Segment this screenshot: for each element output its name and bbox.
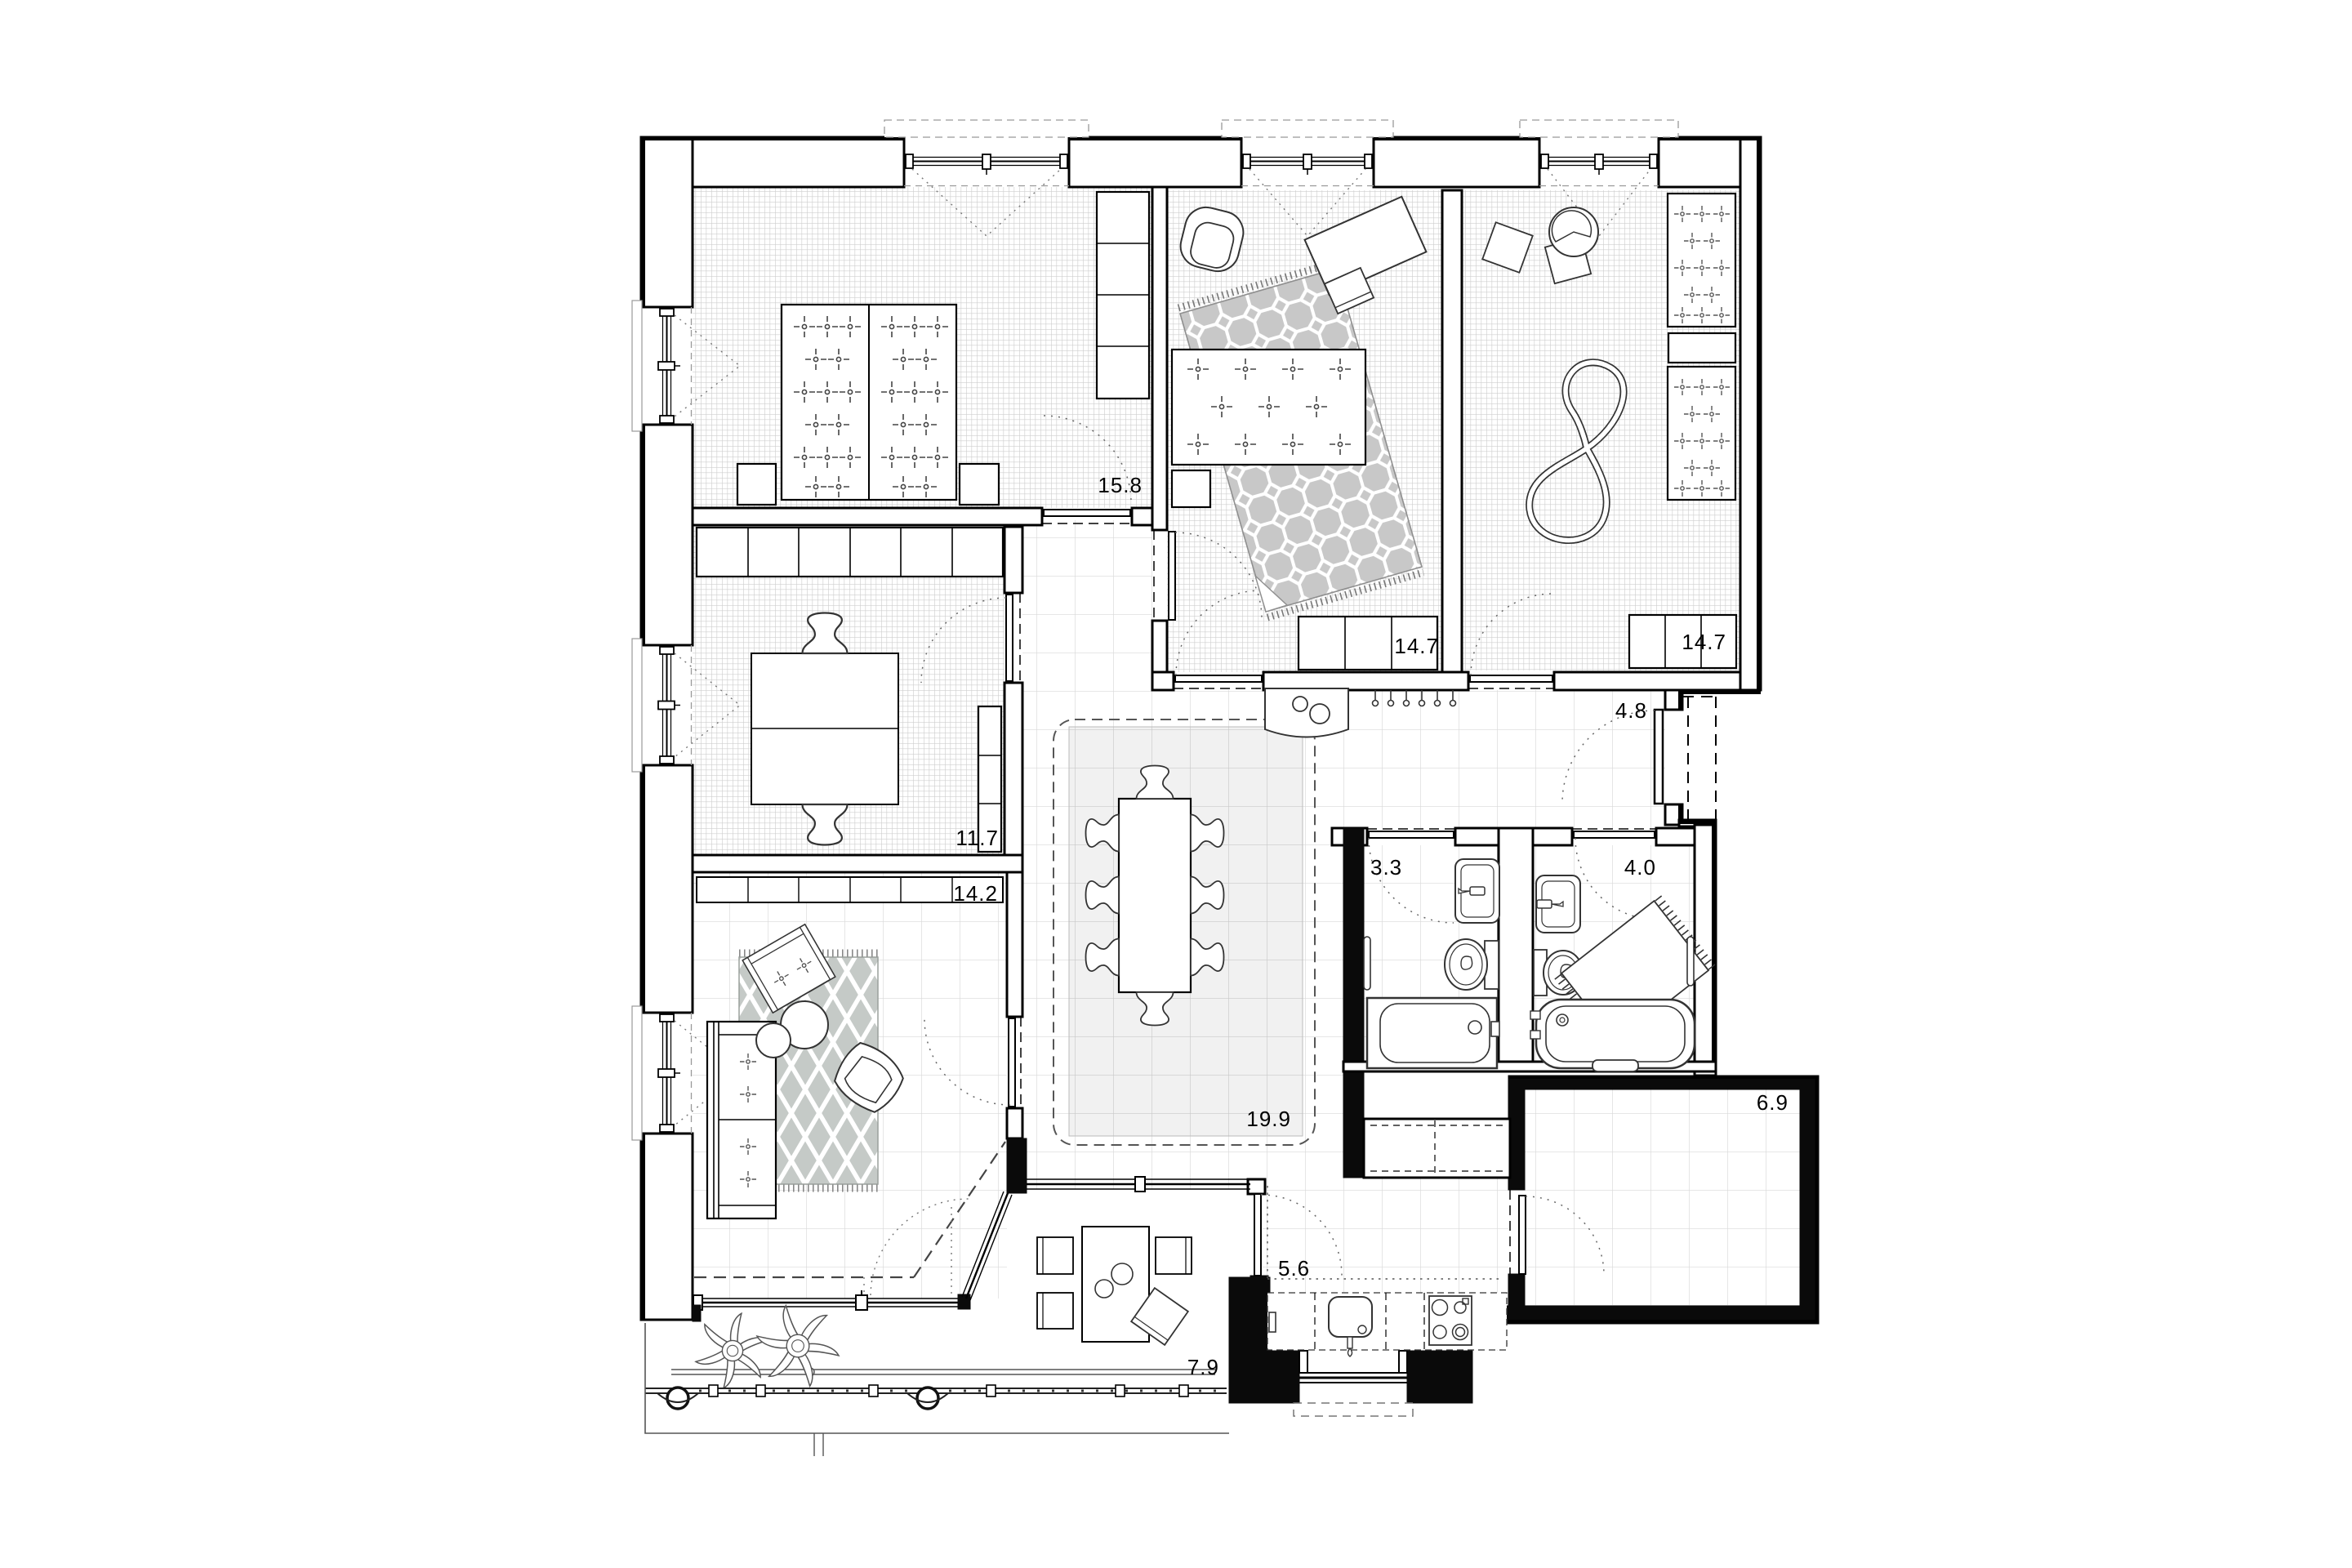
svg-text:3.3: 3.3	[1370, 855, 1402, 880]
svg-text:14.7: 14.7	[1394, 634, 1439, 658]
svg-text:11.7: 11.7	[955, 826, 999, 850]
svg-text:15.8: 15.8	[1098, 473, 1143, 497]
svg-text:14.7: 14.7	[1682, 630, 1726, 654]
svg-text:19.9: 19.9	[1246, 1107, 1291, 1131]
svg-text:4.8: 4.8	[1615, 698, 1647, 723]
svg-text:14.2: 14.2	[953, 881, 998, 906]
svg-text:5.6: 5.6	[1278, 1256, 1310, 1281]
svg-text:7.9: 7.9	[1187, 1355, 1219, 1379]
svg-text:4.0: 4.0	[1624, 855, 1656, 880]
svg-text:6.9: 6.9	[1757, 1090, 1788, 1115]
